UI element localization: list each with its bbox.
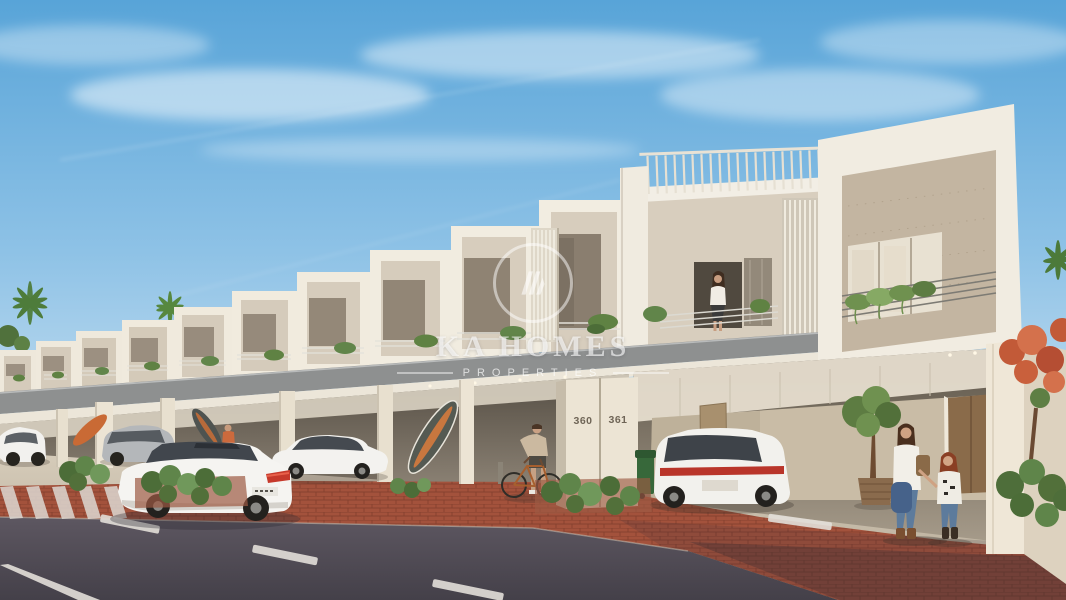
balcony-planter: [750, 299, 770, 313]
townhouse-unit: [370, 250, 451, 368]
townhouse-unit: [297, 272, 370, 376]
unit-number-left: 360: [573, 415, 592, 427]
architectural-rendering: 360 361: [0, 0, 1066, 600]
slat-screen: [531, 228, 559, 342]
townhouse-unit: [451, 226, 539, 360]
townhouse-unit: [232, 291, 297, 383]
unit-number-right: 361: [608, 414, 627, 426]
white-suv-parked: [650, 428, 794, 514]
townhouse-unit-corner: [818, 104, 1022, 368]
balcony-planter: [643, 306, 667, 322]
